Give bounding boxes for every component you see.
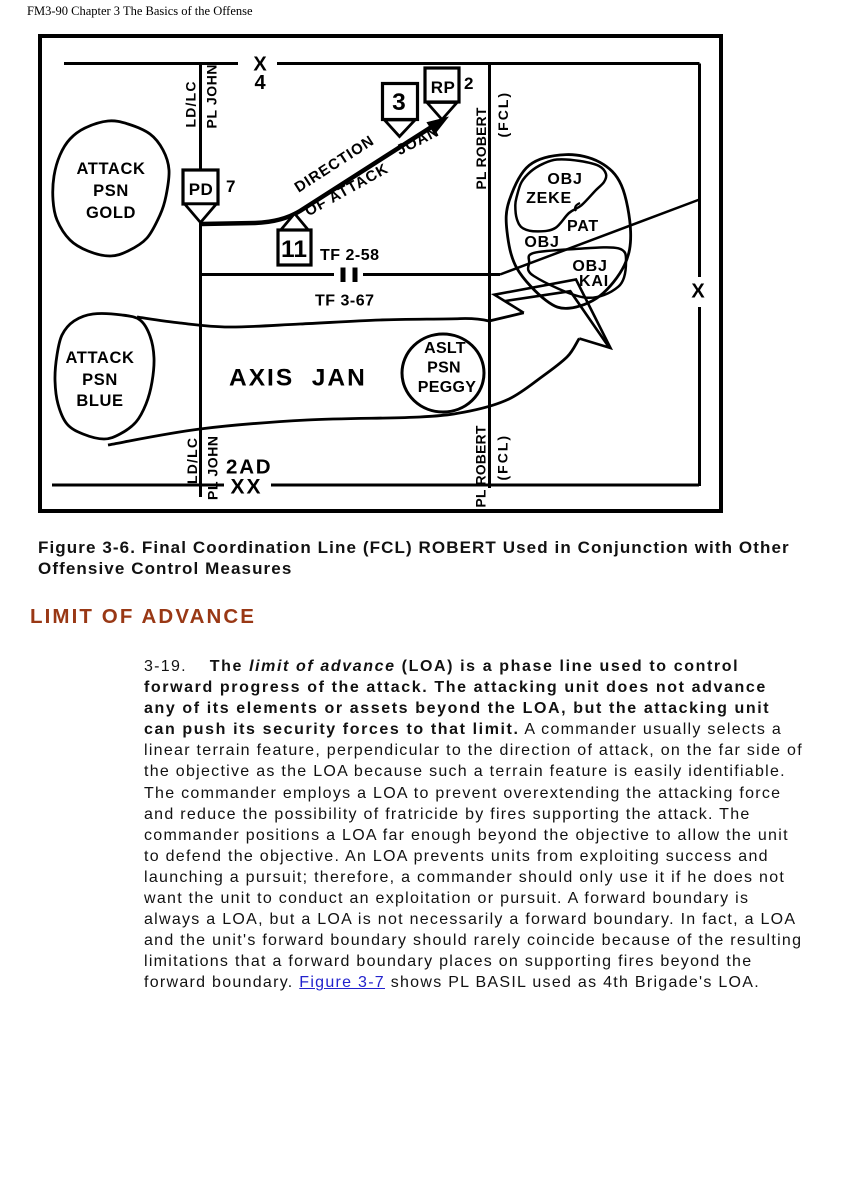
svg-text:KAI: KAI bbox=[579, 273, 609, 290]
svg-text:7: 7 bbox=[226, 177, 235, 196]
svg-text:PSN: PSN bbox=[82, 371, 118, 389]
svg-text:11: 11 bbox=[281, 236, 307, 263]
svg-text:LD/LC: LD/LC bbox=[183, 80, 199, 127]
svg-text:(FCL): (FCL) bbox=[495, 91, 511, 138]
svg-text:ATTACK: ATTACK bbox=[66, 349, 135, 367]
svg-text:TF 3-67: TF 3-67 bbox=[315, 293, 375, 310]
svg-text:OBJ: OBJ bbox=[547, 171, 582, 188]
svg-text:PL ROBERT: PL ROBERT bbox=[474, 107, 489, 189]
svg-text:XX: XX bbox=[231, 476, 263, 499]
svg-text:GOLD: GOLD bbox=[86, 204, 136, 222]
svg-text:AXIS JAN: AXIS JAN bbox=[229, 365, 367, 392]
svg-text:PL JOHN: PL JOHN bbox=[204, 64, 220, 129]
svg-text:2: 2 bbox=[464, 74, 473, 93]
svg-text:PSN: PSN bbox=[427, 360, 461, 377]
svg-text:PL ROBERT: PL ROBERT bbox=[474, 425, 489, 507]
svg-text:BLUE: BLUE bbox=[76, 392, 123, 410]
svg-text:LD/LC: LD/LC bbox=[184, 437, 200, 484]
svg-text:TF 2-58: TF 2-58 bbox=[320, 247, 380, 264]
svg-text:ASLT: ASLT bbox=[424, 340, 466, 357]
svg-text:PSN: PSN bbox=[93, 182, 129, 200]
svg-text:4: 4 bbox=[254, 72, 266, 94]
svg-text:(FCL): (FCL) bbox=[495, 434, 511, 481]
svg-text:X: X bbox=[691, 281, 705, 303]
svg-text:RP: RP bbox=[431, 78, 456, 97]
svg-text:PL JOHN: PL JOHN bbox=[205, 435, 221, 500]
svg-text:PAT: PAT bbox=[567, 218, 599, 235]
svg-text:PD: PD bbox=[189, 180, 214, 199]
svg-text:ZEKE: ZEKE bbox=[526, 190, 572, 207]
svg-text:OBJ: OBJ bbox=[524, 234, 559, 251]
svg-text:PEGGY: PEGGY bbox=[418, 379, 476, 396]
svg-text:3: 3 bbox=[392, 89, 406, 116]
svg-text:ATTACK: ATTACK bbox=[77, 160, 146, 178]
